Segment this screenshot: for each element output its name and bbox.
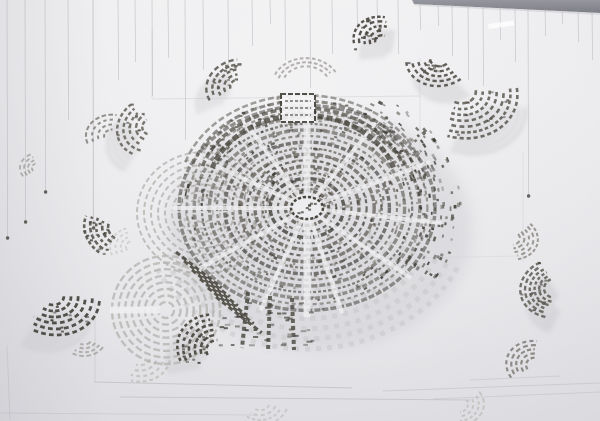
installation-photo (0, 0, 600, 421)
installation-artwork-svg (0, 0, 600, 421)
